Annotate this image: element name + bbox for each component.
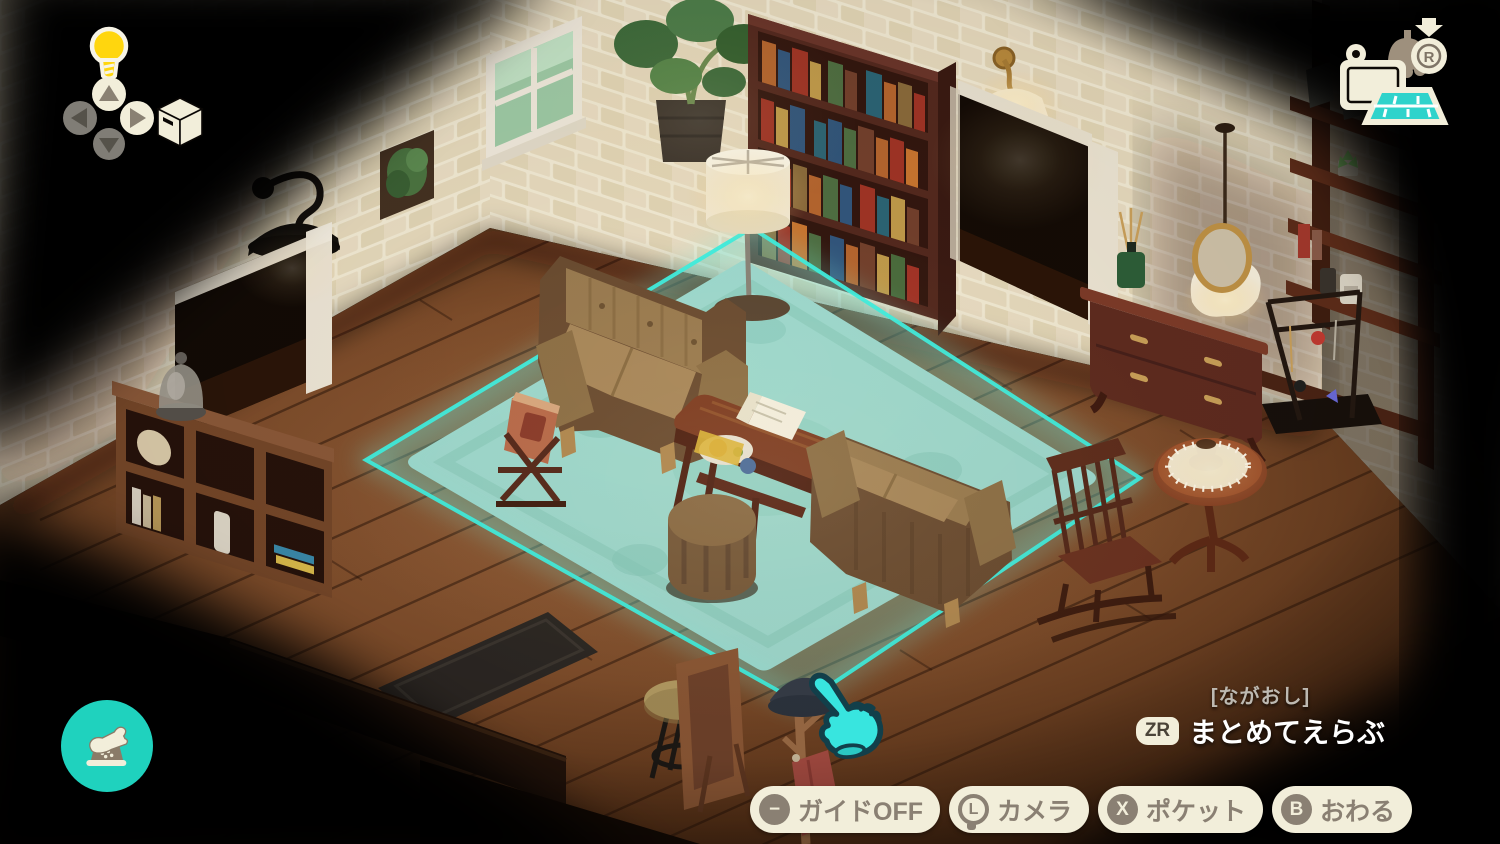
zr-button-badge: ZR: [1136, 717, 1179, 745]
decorate-hand-button[interactable]: [61, 700, 153, 792]
b-button-icon: B: [1281, 794, 1312, 825]
arrow-up-button[interactable]: [92, 77, 126, 111]
hand-cursor: [806, 666, 902, 766]
camera-button[interactable]: L カメラ: [949, 786, 1089, 833]
minus-button-icon: −: [759, 794, 790, 825]
pocket-button[interactable]: X ポケット: [1098, 786, 1263, 833]
pocket-label: ポケット: [1146, 792, 1246, 828]
zr-hint: [ながおし] ZR まとめてえらぶ: [1118, 680, 1403, 751]
arrow-left-button[interactable]: [63, 101, 97, 135]
placement-hand-icon: [76, 716, 138, 776]
arrow-down-button[interactable]: [93, 128, 125, 160]
x-button-icon: X: [1107, 794, 1138, 825]
hint-action-label: まとめてえらぶ: [1189, 711, 1385, 751]
game-screen: R [ながおし] ZR まとめてえらぶ − ガイドOFF L カメラ X ポケッ…: [0, 0, 1500, 844]
svg-text:R: R: [1424, 49, 1435, 66]
storage-box-icon[interactable]: [154, 94, 206, 150]
end-label: おわる: [1320, 792, 1395, 828]
surface-layer-floor-icon[interactable]: R: [1340, 16, 1458, 138]
l-button-icon: L: [958, 794, 989, 825]
hold-modifier-label: [ながおし]: [1118, 680, 1403, 709]
dpad-arrows: [56, 74, 166, 170]
guide-off-button[interactable]: − ガイドOFF: [750, 786, 940, 833]
guide-off-label: ガイドOFF: [798, 792, 923, 828]
bottom-button-bar: − ガイドOFF L カメラ X ポケット B おわる: [750, 786, 1412, 833]
end-button[interactable]: B おわる: [1272, 786, 1412, 833]
floor-tile-glyph: [1366, 90, 1444, 122]
camera-label: カメラ: [997, 792, 1072, 828]
arrow-right-button[interactable]: [120, 101, 154, 135]
r-button-badge[interactable]: R: [1411, 18, 1447, 74]
